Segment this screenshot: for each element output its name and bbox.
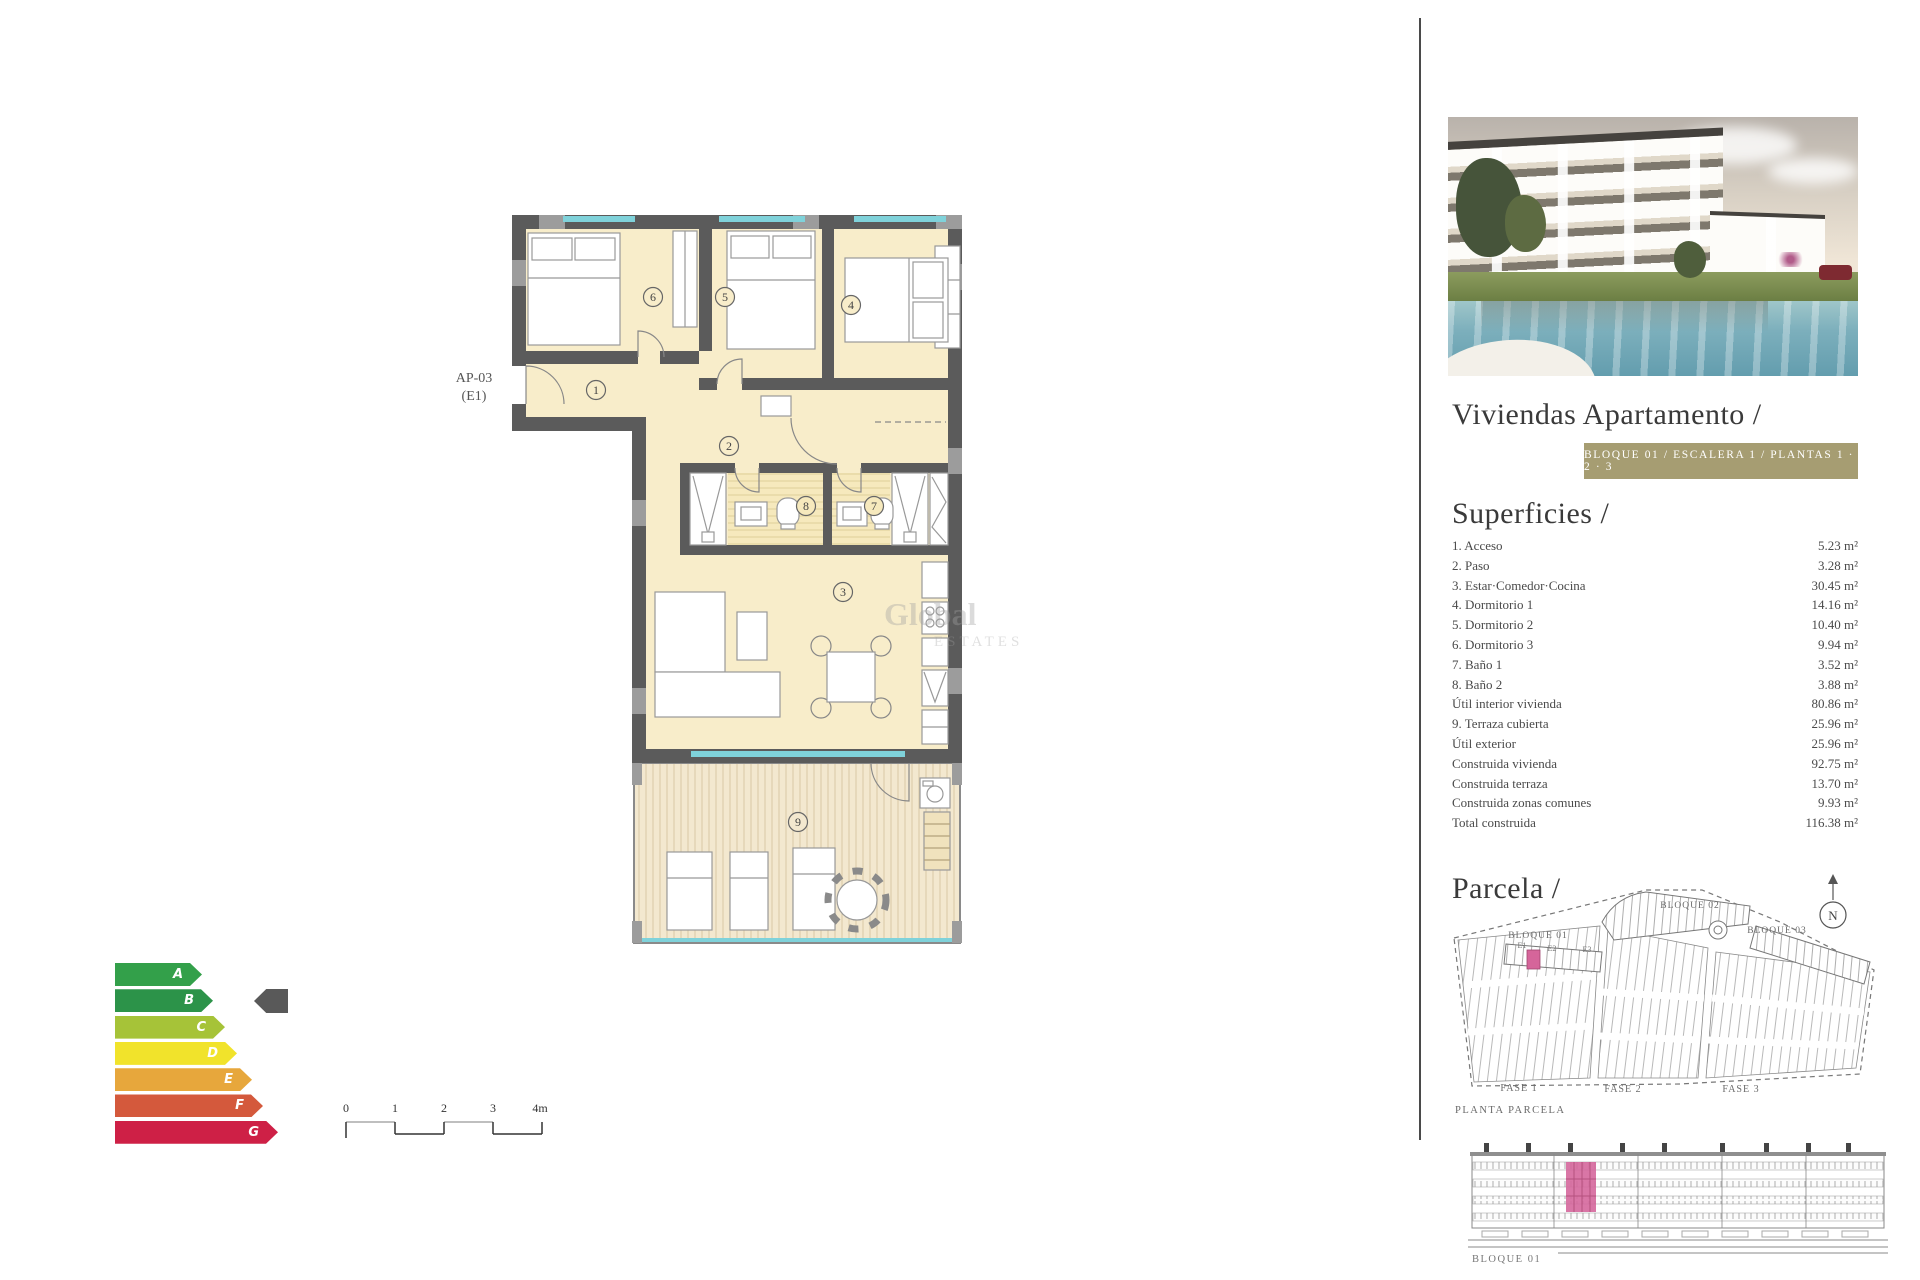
row-label: 6. Dormitorio 3 [1452,635,1533,655]
roof-band [1470,1152,1886,1156]
row-value: 3.88 m² [1818,675,1858,695]
label-e1: E1 [1518,941,1527,950]
energy-bar-e: E [115,1068,252,1091]
row-value: 92.75 m² [1811,754,1858,774]
energy-label-f: F [235,1098,244,1113]
watermark-line1: Global [884,596,976,633]
elevation-caption: BLOQUE 01 [1472,1254,1541,1264]
row-value: 3.28 m² [1818,556,1858,576]
row-value: 10.40 m² [1811,615,1858,635]
energy-bar-a: A [115,963,202,986]
site-plan-caption: PLANTA PARCELA [1455,1105,1566,1116]
photo-palm-tree [1674,241,1707,277]
row-value: 9.94 m² [1818,635,1858,655]
scale-tick-0: 0 [343,1101,349,1115]
photo-car [1819,265,1852,281]
row-label: Útil interior vivienda [1452,694,1562,714]
unit-code: AP-03 [438,370,510,388]
row-label: 3. Estar·Comedor·Cocina [1452,576,1586,596]
label-fase2: FASE 2 [1604,1084,1641,1095]
table-row: 3. Estar·Comedor·Cocina30.45 m² [1452,576,1858,596]
ground-floor [1482,1231,1868,1237]
room-number: 9 [795,815,801,829]
label-e2: E2 [1548,944,1557,953]
table-row: Construida vivienda92.75 m² [1452,754,1858,774]
room-number: 5 [722,290,728,304]
label-bloque03: BLOQUE 03 [1747,926,1806,936]
row-value: 116.38 m² [1805,813,1858,833]
row-label: 9. Terraza cubierta [1452,714,1549,734]
row-value: 9.93 m² [1818,793,1858,813]
row-label: Construida zonas comunes [1452,793,1591,813]
floor-plan-drawing: 1 2 3 4 5 6 7 8 9 [505,200,965,960]
compass-n: N [1828,908,1838,923]
elevation-highlight [1566,1162,1596,1212]
table-row: 5. Dormitorio 210.40 m² [1452,615,1858,635]
row-label: 8. Baño 2 [1452,675,1502,695]
label-e3: E3 [1583,945,1592,954]
row-label: 4. Dormitorio 1 [1452,595,1533,615]
table-row: 7. Baño 13.52 m² [1452,655,1858,675]
block-badge: BLOQUE 01 / ESCALERA 1 / PLANTAS 1 · 2 ·… [1584,443,1858,479]
room-number: 7 [871,499,877,513]
room-number: 8 [803,499,809,513]
scale-tick-3: 3 [490,1101,496,1115]
row-label: Útil exterior [1452,734,1516,754]
energy-bar-g: G [115,1121,278,1144]
table-row: 9. Terraza cubierta25.96 m² [1452,714,1858,734]
row-value: 5.23 m² [1818,536,1858,556]
row-value: 25.96 m² [1811,714,1858,734]
energy-bar-d: D [115,1042,237,1065]
row-label: 2. Paso [1452,556,1490,576]
row-value: 14.16 m² [1811,595,1858,615]
table-row: Construida zonas comunes9.93 m² [1452,793,1858,813]
highlighted-unit [1527,950,1540,969]
ground-lines [1468,1240,1888,1253]
row-value: 30.45 m² [1811,576,1858,596]
row-label: Construida vivienda [1452,754,1557,774]
room-number: 1 [593,383,599,397]
energy-label-c: C [196,1020,206,1035]
row-label: Construida terraza [1452,774,1548,794]
table-row: 2. Paso3.28 m² [1452,556,1858,576]
photo-flowers [1776,252,1805,268]
row-value: 80.86 m² [1811,694,1858,714]
north-compass-icon: N [1820,874,1846,928]
watermark-line2: ESTATES [934,634,1023,651]
table-row: 6. Dormitorio 39.94 m² [1452,635,1858,655]
superficies-heading: Superficies / [1452,497,1609,531]
energy-bar-c: C [115,1016,225,1039]
row-value: 13.70 m² [1811,774,1858,794]
table-row: Útil exterior25.96 m² [1452,734,1858,754]
row-value: 3.52 m² [1818,655,1858,675]
label-fase3: FASE 3 [1722,1084,1759,1095]
panel-divider [1419,18,1421,1140]
energy-label-d: D [207,1046,218,1061]
energy-bar-f: F [115,1094,263,1117]
label-bloque01: BLOQUE 01 [1508,931,1567,941]
room-number: 6 [650,290,656,304]
row-label: 7. Baño 1 [1452,655,1502,675]
photo-pool-reflection [1481,301,1768,332]
superficies-table: 1. Acceso5.23 m² 2. Paso3.28 m² 3. Estar… [1452,536,1858,833]
row-label: 1. Acceso [1452,536,1503,556]
table-row: 8. Baño 23.88 m² [1452,675,1858,695]
unit-stair: (E1) [438,388,510,406]
room-number: 4 [848,298,854,312]
room-number: 2 [726,439,732,453]
energy-label-a: A [173,967,183,982]
photo-cloud [1768,158,1858,184]
scale-tick-4: 4m [532,1101,548,1115]
scale-bar: 0 1 2 3 4m [338,1098,550,1142]
energy-label-g: G [248,1125,259,1140]
row-label: Total construida [1452,813,1536,833]
label-fase1: FASE 1 [1500,1083,1537,1094]
energy-label-e: E [224,1072,233,1087]
table-row: Útil interior vivienda80.86 m² [1452,694,1858,714]
room-number: 3 [840,585,846,599]
energy-bar-b: B [115,989,213,1012]
row-value: 25.96 m² [1811,734,1858,754]
table-row: Total construida116.38 m² [1452,813,1858,833]
table-row: 4. Dormitorio 114.16 m² [1452,595,1858,615]
scale-tick-2: 2 [441,1101,447,1115]
label-bloque02: BLOQUE 02 [1660,901,1719,911]
row-label: 5. Dormitorio 2 [1452,615,1533,635]
site-plan: BLOQUE 01 BLOQUE 02 BLOQUE 03 E1 E2 E3 F… [1450,860,1890,1120]
unit-label: AP-03 (E1) [438,370,510,406]
elevation-drawing: BLOQUE 01 [1468,1140,1888,1264]
scale-tick-1: 1 [392,1101,398,1115]
table-row: 1. Acceso5.23 m² [1452,536,1858,556]
page-title: Viviendas Apartamento / [1452,398,1872,432]
floor-plan: 1 2 3 4 5 6 7 8 9 [505,200,965,960]
energy-label-b: B [184,993,194,1008]
hero-photo [1448,117,1858,376]
table-row: Construida terraza13.70 m² [1452,774,1858,794]
roof-chimneys [1484,1143,1851,1152]
